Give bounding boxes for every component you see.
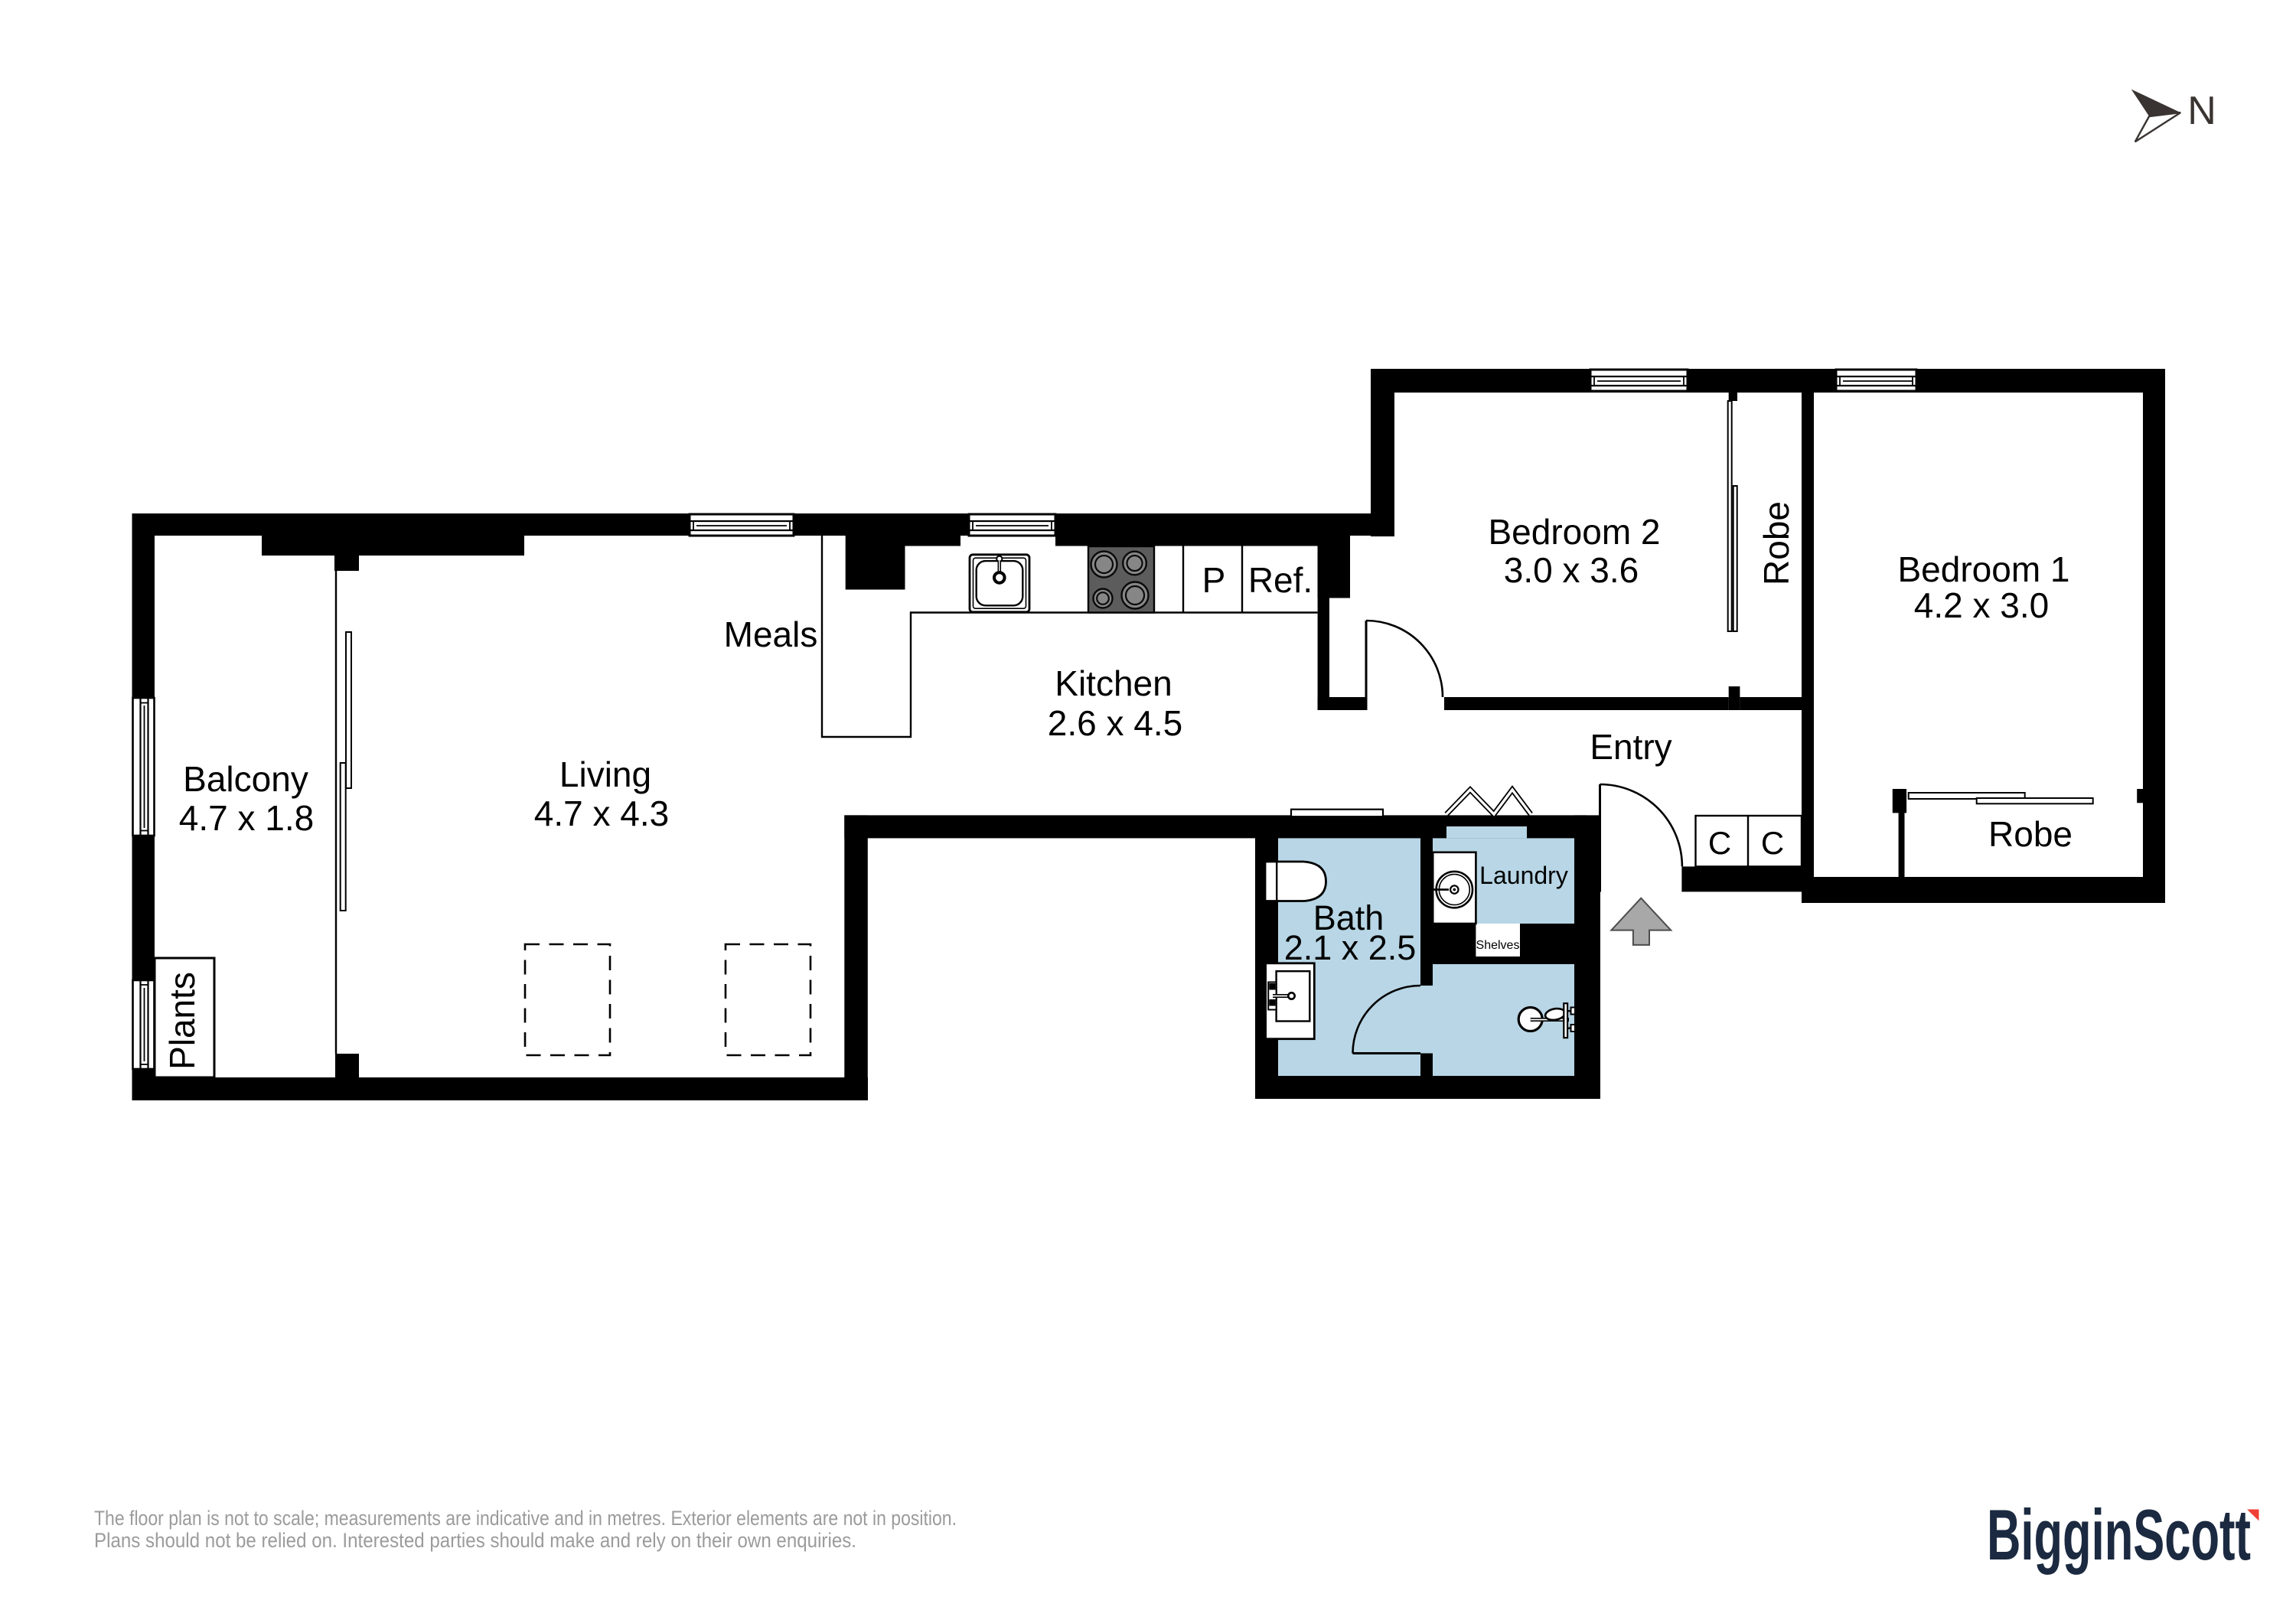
svg-text:Shelves: Shelves bbox=[1476, 939, 1520, 952]
svg-text:Robe: Robe bbox=[1988, 814, 2073, 854]
svg-text:Kitchen: Kitchen bbox=[1055, 663, 1172, 703]
svg-text:2.1 x 2.5: 2.1 x 2.5 bbox=[1284, 928, 1417, 967]
svg-text:The floor plan is not to scale: The floor plan is not to scale; measurem… bbox=[94, 1507, 957, 1530]
svg-text:Entry: Entry bbox=[1590, 727, 1671, 767]
svg-text:2.6 x 4.5: 2.6 x 4.5 bbox=[1048, 703, 1182, 743]
svg-text:Balcony: Balcony bbox=[183, 759, 308, 799]
svg-text:N: N bbox=[2187, 89, 2216, 133]
svg-text:Living: Living bbox=[559, 754, 651, 794]
svg-text:C: C bbox=[1761, 825, 1784, 861]
svg-text:3.0 x 3.6: 3.0 x 3.6 bbox=[1504, 550, 1639, 590]
svg-text:C: C bbox=[1708, 825, 1731, 861]
svg-text:Plans should not be relied on.: Plans should not be relied on. Intereste… bbox=[94, 1529, 856, 1552]
svg-text:Robe: Robe bbox=[1756, 501, 1796, 585]
svg-text:BigginScott: BigginScott bbox=[1987, 1494, 2251, 1575]
svg-text:P: P bbox=[1202, 560, 1226, 600]
svg-text:Bedroom 1: Bedroom 1 bbox=[1897, 549, 2069, 589]
svg-text:Plants: Plants bbox=[162, 972, 202, 1070]
svg-text:4.7 x 4.3: 4.7 x 4.3 bbox=[534, 794, 669, 833]
svg-text:Meals: Meals bbox=[724, 614, 818, 654]
svg-text:Bedroom 2: Bedroom 2 bbox=[1488, 512, 1660, 552]
svg-text:4.7 x 1.8: 4.7 x 1.8 bbox=[179, 798, 314, 838]
svg-text:Laundry: Laundry bbox=[1479, 862, 1568, 889]
svg-text:Ref.: Ref. bbox=[1248, 560, 1313, 600]
svg-text:4.2 x 3.0: 4.2 x 3.0 bbox=[1914, 585, 2049, 625]
